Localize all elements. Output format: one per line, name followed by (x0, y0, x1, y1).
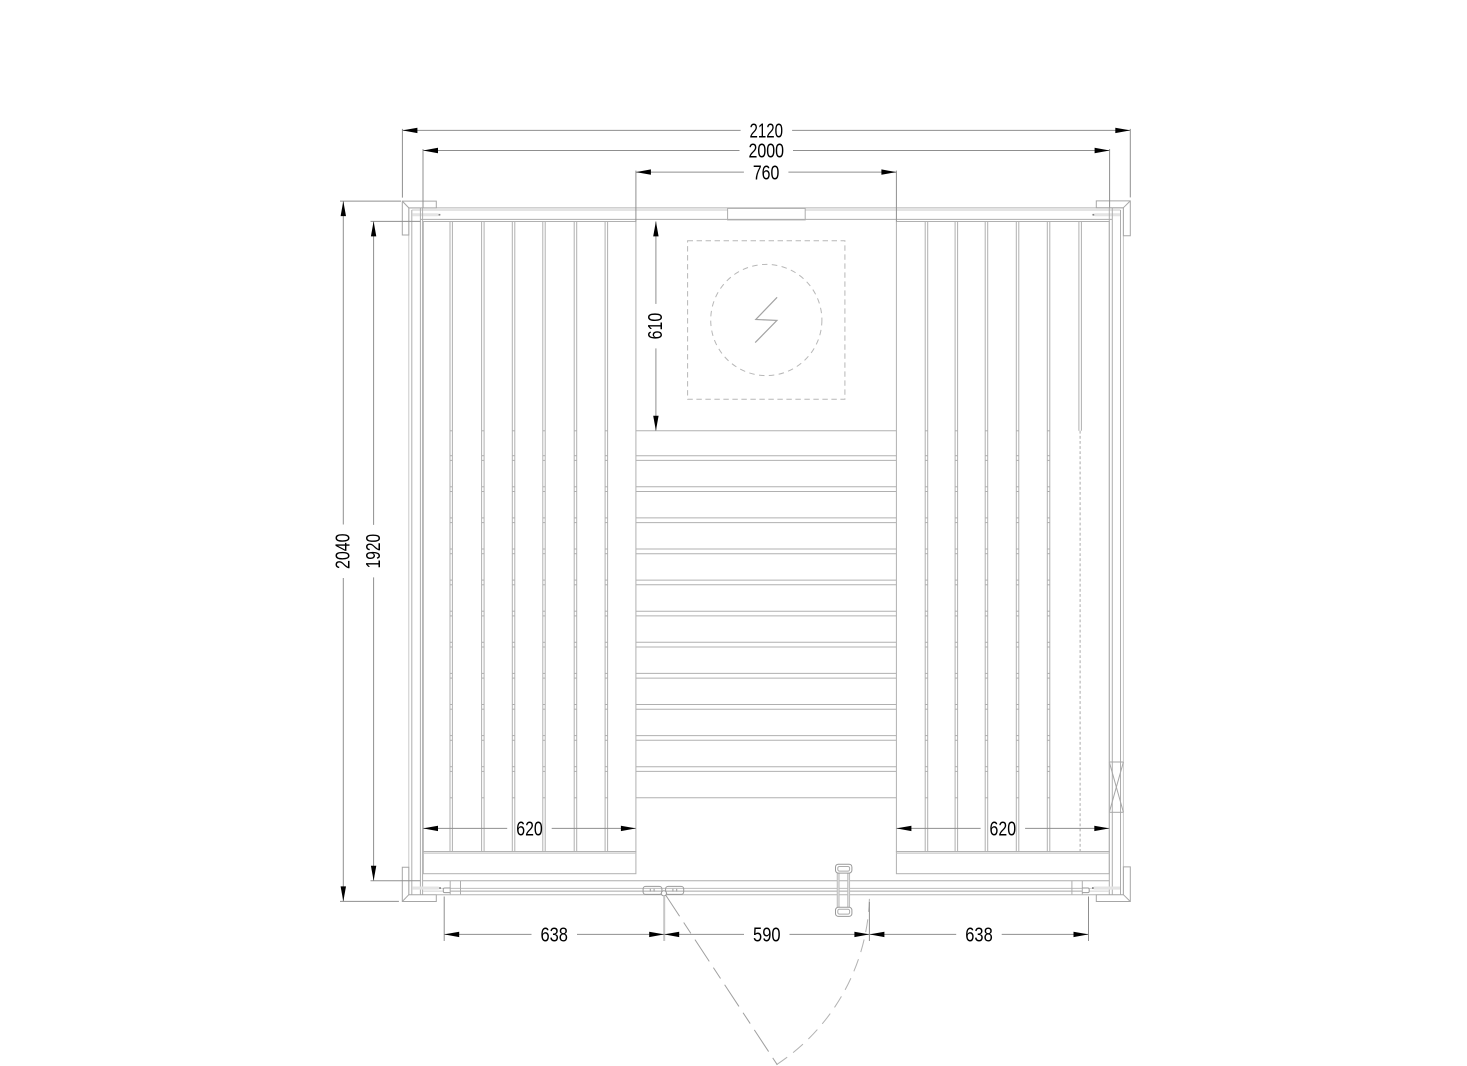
svg-text:2040: 2040 (333, 533, 355, 569)
svg-text:638: 638 (965, 925, 993, 947)
svg-text:620: 620 (516, 819, 543, 841)
svg-text:2120: 2120 (750, 121, 784, 143)
svg-text:1920: 1920 (363, 534, 385, 569)
svg-text:760: 760 (753, 162, 780, 184)
svg-text:2000: 2000 (749, 141, 785, 163)
svg-text:638: 638 (540, 925, 568, 947)
svg-text:590: 590 (753, 925, 781, 947)
svg-text:620: 620 (990, 819, 1017, 841)
svg-text:610: 610 (645, 313, 667, 340)
